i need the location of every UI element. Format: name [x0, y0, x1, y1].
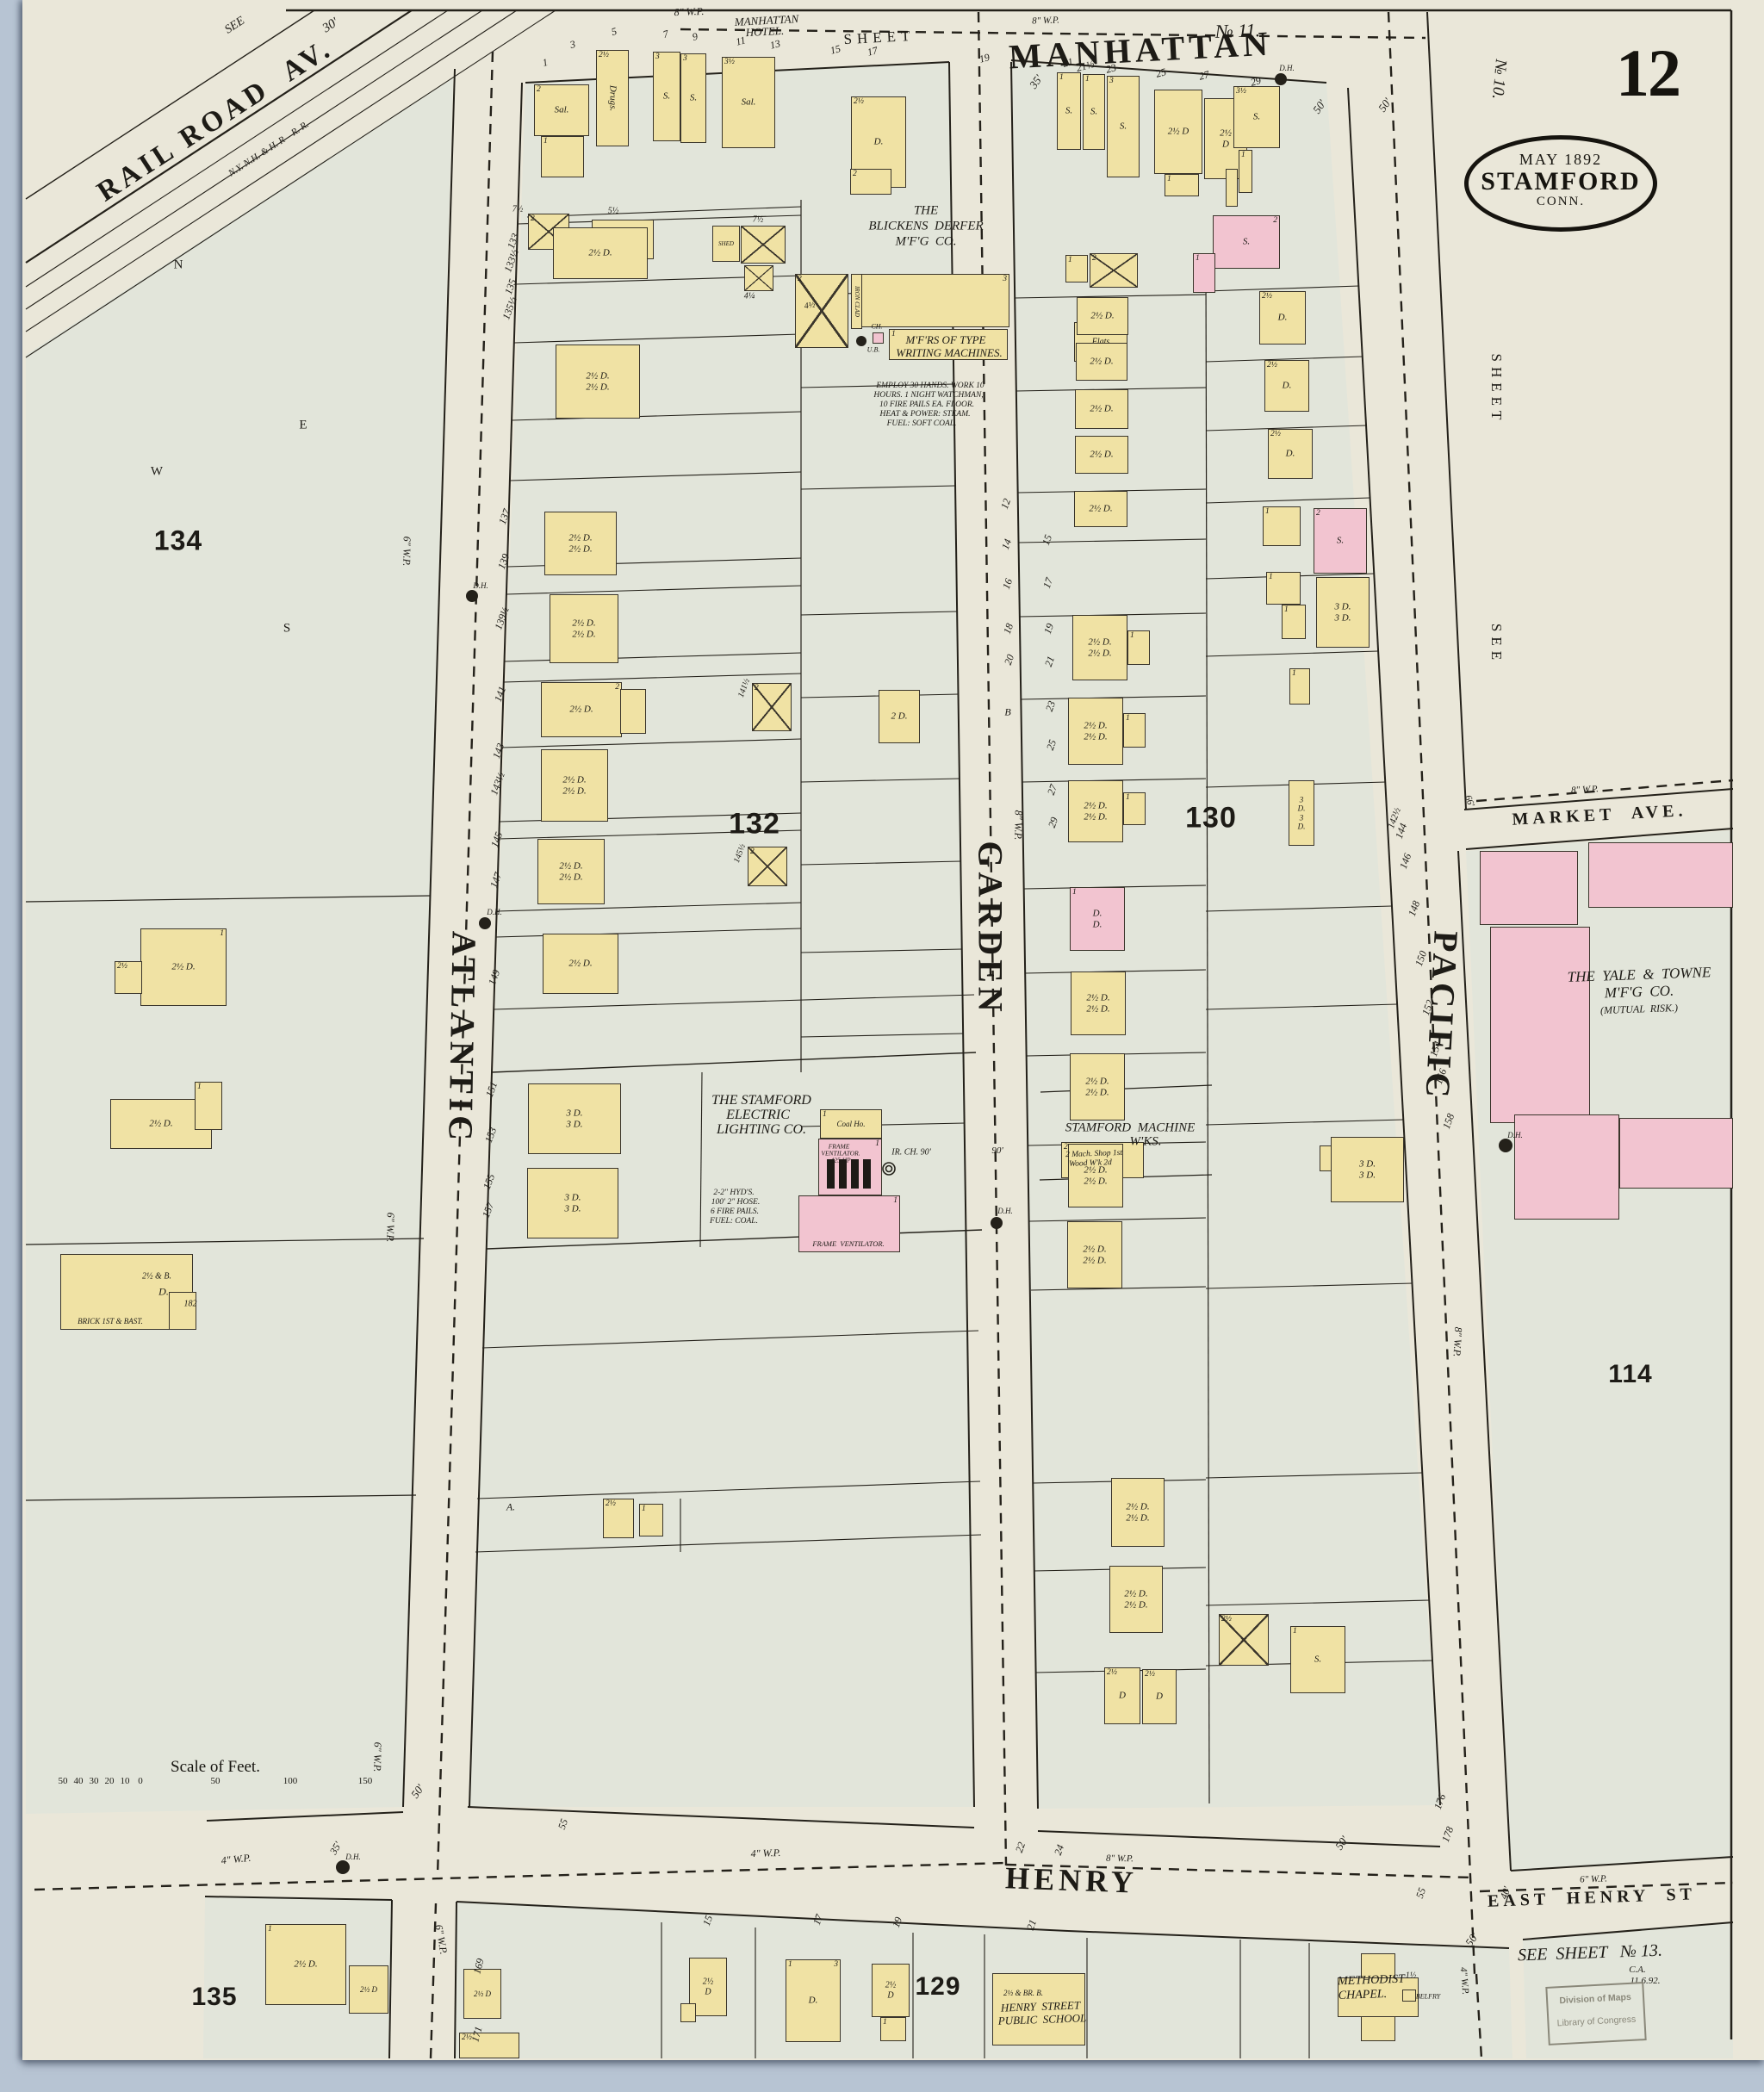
building-stories: 1	[543, 137, 548, 146]
building-label: 2½ D. 2½ D.	[559, 860, 582, 882]
map-label: 6 FIRE PAILS.	[711, 1207, 759, 1216]
building-label: 2 D.	[891, 711, 908, 723]
building-stories: 1	[197, 1083, 202, 1091]
building: 2S.	[1314, 508, 1367, 574]
map-label: D.H.	[473, 581, 488, 590]
building-label: 2½ D.	[1090, 311, 1114, 322]
building-stories: 2½	[1262, 292, 1272, 301]
map-label: ELECTRIC	[726, 1108, 790, 1123]
map-label: 8" W.P.	[674, 5, 704, 19]
building-label: S.	[1065, 106, 1072, 117]
building: 2½ D. 2½ D.	[1109, 1566, 1163, 1633]
building-stories: 1	[823, 1110, 827, 1119]
map-label: IRON CLAD	[854, 286, 860, 317]
building-label: 2½ D. 2½ D.	[1088, 636, 1111, 658]
building-label: S.	[690, 93, 697, 104]
stamp-line2: Library of Congress	[1549, 2014, 1643, 2029]
scale-tick: 50	[211, 1776, 220, 1786]
building-stories: 2½	[1107, 1668, 1117, 1677]
building: 2½ D.	[1076, 343, 1127, 381]
building: 2½D	[1104, 1667, 1140, 1724]
block-number-134: 134	[154, 525, 202, 557]
building-stories: 3½	[724, 58, 735, 66]
map-label: (MUTUAL RISK.)	[1600, 1002, 1679, 1017]
building-label: 2½ D. 2½ D.	[1085, 1076, 1109, 1097]
building-stories: 2½	[599, 51, 609, 59]
map-label: METHODIST	[1338, 1973, 1405, 1990]
building-label: 2½ D.	[569, 705, 593, 716]
water-pipe-line	[34, 1863, 1006, 1890]
street-label-atlantic: ATLANTIC	[440, 931, 484, 1145]
map-label: 2½ & BR. B.	[1003, 1989, 1043, 1997]
building-label: D.	[809, 1996, 818, 2007]
building: 2½ D. 2½ D.	[537, 839, 605, 904]
street-label-henry: HENRY	[1004, 1859, 1138, 1900]
building-stories: 3	[834, 1960, 838, 1969]
building: 1	[195, 1082, 222, 1130]
building: 1	[1263, 506, 1301, 546]
map-label: B	[1004, 706, 1010, 719]
seal-state: CONN.	[1469, 195, 1653, 209]
building-label: 2½ D.	[171, 962, 195, 973]
hydrant-dot	[1499, 1139, 1512, 1152]
building-label: 2½ D.	[568, 959, 592, 970]
map-label: 4½	[804, 300, 816, 311]
map-label: D.	[158, 1286, 169, 1299]
building: 2 D.	[879, 690, 920, 743]
building-label: 3 D. 3 D.	[1335, 601, 1351, 623]
map-label: HOURS. 1 NIGHT WATCHMAN,	[873, 391, 983, 400]
building-stories: 2½	[854, 97, 864, 106]
map-label: 4" W.P.	[750, 1847, 780, 1860]
building-stories: 1	[1265, 507, 1270, 516]
building: 2½ D. 2½ D.	[1072, 615, 1127, 680]
building	[169, 1292, 196, 1330]
map-label: 8" W.P.	[1032, 15, 1059, 26]
building	[1480, 851, 1578, 925]
building-label: Coal Ho.	[836, 1120, 865, 1128]
map-label: C.A.	[1629, 1965, 1646, 1975]
building-stories: 2	[750, 847, 755, 856]
hydrant-dot	[991, 1217, 1003, 1229]
building: 1S.	[1057, 72, 1081, 150]
building: 2½D	[1142, 1669, 1177, 1724]
building-stories: 1	[1130, 631, 1134, 640]
building-stories: 3	[1003, 275, 1007, 283]
building-stories: 2½	[1270, 430, 1281, 438]
map-label: FRAME VENTILATOR.	[812, 1239, 884, 1248]
block-number-114: 114	[1608, 1360, 1652, 1389]
map-label: M'F'G CO.	[1604, 983, 1674, 1003]
stamp-line1: Division of Maps	[1548, 1991, 1643, 2007]
map-label: M'F'RS OF TYPE	[906, 333, 986, 347]
building-stories: 2	[1092, 254, 1096, 263]
map-label: Wood W'k 2d	[1069, 1158, 1112, 1169]
map-label: EMPLOY 30 HANDS. WORK 10	[876, 382, 984, 390]
building-stories: 1	[1196, 254, 1200, 263]
building-stories: 1	[1126, 793, 1130, 802]
building-stories: 1	[1085, 75, 1090, 84]
map-label: STAMFORD MACHINE	[1065, 1121, 1196, 1136]
building: 1	[1165, 174, 1199, 196]
map-label: W'KS.	[1130, 1135, 1162, 1150]
building: 2½ D.	[1075, 389, 1128, 429]
map-label: 2½ & B.	[142, 1272, 171, 1282]
map-line	[468, 1807, 974, 1828]
building	[1402, 1990, 1416, 2002]
building-label: 2½ D	[360, 1985, 377, 1994]
building-label: 2½ D.	[1090, 404, 1113, 415]
building-stories: 2½	[606, 1499, 616, 1508]
map-label: M'F'G CO.	[896, 235, 957, 250]
building-stories: 1	[1293, 1627, 1297, 1636]
building: 1	[1266, 572, 1301, 605]
map-label: 6" W.P.	[400, 537, 413, 567]
map-label: CH.	[871, 323, 882, 331]
building-stories: 1	[1284, 605, 1289, 614]
building	[1226, 169, 1238, 207]
building-stories: 1	[1068, 256, 1072, 264]
building: 2½ D	[349, 1965, 388, 2014]
building: 2½Drugs.	[596, 50, 629, 146]
building-label: Sal.	[742, 97, 756, 109]
building	[863, 1159, 871, 1189]
building-label: 2½ D	[474, 1990, 491, 1998]
building	[1320, 1145, 1332, 1171]
block-number-132: 132	[729, 808, 780, 841]
building-stories: 2	[615, 683, 619, 692]
building	[1588, 842, 1733, 908]
building-label: 2½ D. 2½ D.	[572, 618, 595, 639]
building: 1	[1193, 253, 1215, 293]
scale-tick: 150	[358, 1776, 373, 1786]
building-label: D	[1119, 1691, 1126, 1702]
building: 2½	[459, 2033, 519, 2058]
building: 2½	[115, 961, 142, 994]
map-label: 7½	[753, 215, 764, 225]
building: 2½ D.	[1074, 491, 1127, 527]
building-stories: 2	[755, 684, 759, 692]
building: 1	[1123, 792, 1146, 825]
building-label: D.	[1283, 381, 1292, 392]
building-stories: 1	[1269, 573, 1273, 581]
map-label: A.	[506, 1501, 515, 1514]
map-label: THE	[914, 204, 938, 219]
sanborn-map-page: 2Sal.12½Drugs.3S.3S.3½Sal.2½D.22BOTTLING…	[0, 0, 1764, 2092]
building-label: 2½ D.	[1089, 504, 1112, 515]
building-label: 2½ D.	[149, 1119, 172, 1130]
building-label: 3 D. 3 D.	[567, 1108, 583, 1129]
building-stories: 2½	[117, 962, 127, 971]
street-label-garden: GARDEN	[971, 841, 1011, 1015]
building-stories: 1	[1126, 714, 1130, 723]
building: 2½ D. 2½ D.	[544, 512, 617, 575]
building: 2½ D. 2½ D.	[1070, 1053, 1125, 1120]
building	[873, 332, 884, 344]
building-label: 2½ D. 2½ D.	[1086, 992, 1109, 1014]
map-label: IR. CH. 90'	[891, 1148, 930, 1158]
building: 2½ D.	[543, 934, 618, 994]
building: 3S.	[680, 53, 706, 143]
building	[1514, 1114, 1619, 1220]
map-label: D.H.	[1507, 1131, 1523, 1139]
building: 2½ D. 2½ D.	[1068, 698, 1123, 765]
building	[1490, 927, 1590, 1123]
building-label: S.	[1253, 112, 1260, 123]
building-label: D.	[1278, 313, 1288, 324]
map-label: BELFRY	[1416, 1993, 1440, 2001]
building: 2½D.	[1259, 291, 1306, 345]
building: 2½ D. 2½ D.	[1068, 780, 1123, 842]
building-stories: 1	[220, 929, 224, 938]
map-line	[1038, 1831, 1440, 1847]
building: 3S.	[653, 52, 680, 141]
map-label: 8" W.P.	[1450, 1326, 1465, 1356]
map-label: U.B.	[867, 346, 880, 354]
scale-tick: 20	[105, 1776, 115, 1786]
building: 2½ D. 2½ D.	[1071, 972, 1126, 1035]
building: 3	[861, 274, 1009, 327]
seal-city: STAMFORD	[1469, 169, 1653, 195]
building: 1	[541, 136, 584, 177]
building: 2½ D. 2½ D.	[541, 749, 608, 822]
building-label: Drugs.	[607, 85, 618, 111]
building: 2Sal.	[534, 84, 589, 136]
map-label: BLICKENS DERFER	[868, 220, 983, 234]
building-stories: 1	[893, 1196, 898, 1205]
building	[851, 1159, 859, 1189]
building: 2½D.	[1264, 360, 1309, 412]
map-line	[1427, 12, 1466, 810]
compass-s: S	[283, 622, 290, 636]
building: 2	[1090, 253, 1138, 288]
hydrant-dot	[479, 917, 491, 929]
building	[744, 265, 773, 291]
building-label: 2½ D.	[588, 248, 612, 259]
map-label: SHEET	[1488, 354, 1505, 425]
building: 3 D. 3 D.	[527, 1168, 618, 1238]
map-label: 6" W.P.	[1580, 1873, 1607, 1884]
building-label: 2½ D.	[1090, 450, 1113, 461]
building-label: 3 D. 3 D.	[1295, 795, 1307, 830]
map-label: LIGHTING CO.	[717, 1122, 806, 1138]
building: 2½ D. 2½ D.	[1067, 1221, 1122, 1288]
building-stories: 1	[1241, 151, 1245, 159]
map-label: 4¼	[744, 292, 755, 301]
map-label: FUEL: COAL.	[710, 1217, 758, 1226]
map-label: SEE	[1488, 624, 1505, 665]
building	[680, 2003, 696, 2022]
building-label: S.	[1120, 121, 1127, 133]
building: SHED	[712, 226, 740, 262]
map-label: 6" W.P.	[370, 1742, 384, 1772]
building-stories: 2	[531, 214, 535, 223]
building: 3 D. 3 D.	[1289, 780, 1314, 846]
building: 2½ D. 2½ D.	[556, 345, 640, 419]
building: 1	[1289, 668, 1310, 705]
building-stories: 3½	[1236, 87, 1246, 96]
building: 3 D. 3 D.	[1331, 1137, 1404, 1202]
block-tint	[26, 78, 453, 1814]
map-label: 8" W.P.	[1571, 784, 1599, 796]
block-number-130: 130	[1185, 802, 1237, 835]
hydrant-dot	[336, 1860, 350, 1874]
map-label: 6" W.P.	[383, 1213, 397, 1243]
building-stories: 2	[1316, 509, 1320, 518]
building: 1	[880, 2017, 906, 2041]
building-label: D. D.	[1093, 908, 1102, 929]
compass-w: W	[151, 465, 163, 480]
building: 1S.	[1290, 1626, 1345, 1693]
building-stories: 1	[1292, 669, 1296, 678]
building-label: S.	[1243, 237, 1250, 248]
map-line	[207, 1812, 403, 1821]
block-number-129: 129	[915, 1972, 960, 2002]
map-label: 7½	[512, 205, 524, 214]
building: 1	[1127, 630, 1150, 665]
compass-n: N	[174, 258, 183, 273]
water-pipe-line	[1476, 780, 1733, 801]
building: 22½ D.	[541, 682, 622, 737]
building-label: 2½ D.	[1090, 357, 1113, 368]
building-label: 2½ D	[885, 1981, 897, 2001]
building-label: 2½ D. 2½ D.	[1126, 1501, 1149, 1523]
building-label: 2½ D.	[294, 1959, 317, 1971]
building-stories: 2	[798, 275, 802, 283]
building: 3½Sal.	[722, 57, 775, 148]
scale-tick: 0	[138, 1776, 143, 1786]
building-label: SHED	[718, 240, 734, 247]
building: 2S.	[1213, 215, 1280, 269]
building: 2	[795, 274, 848, 348]
building-label: S.	[1337, 536, 1344, 547]
map-label: № 11.	[1214, 19, 1260, 43]
building-label: S.	[1314, 1654, 1321, 1666]
building	[620, 689, 646, 734]
map-label: 10 FIRE PAILS EA. FLOOR.	[879, 400, 974, 409]
building: 3 D. 3 D.	[528, 1083, 621, 1154]
building-stories: 1	[788, 1960, 792, 1969]
building-stories: 1	[1167, 175, 1171, 183]
building-stories: 3	[655, 53, 660, 61]
building: 2½	[603, 1499, 634, 1538]
building: 12½ D.	[140, 928, 227, 1006]
building: 2½D.	[1268, 429, 1313, 479]
building-stories: 2½	[1221, 1615, 1232, 1623]
compass-e: E	[299, 419, 307, 433]
building-label: 2½ D. 2½ D.	[562, 774, 586, 796]
map-label: 90'	[991, 1145, 1003, 1156]
building-label: 2½ D. 2½ D.	[1084, 1164, 1107, 1186]
building-stories: 2	[853, 170, 857, 178]
building: 2	[850, 169, 891, 195]
map-label: BRICK 1ST & BAST.	[78, 1317, 143, 1325]
scale-tick: 40	[74, 1776, 84, 1786]
map-label: WRITING MACHINES.	[896, 346, 1003, 360]
building: 1	[1282, 605, 1306, 639]
building-label: 3 D. 3 D.	[565, 1192, 581, 1214]
hydrant-dot	[856, 336, 866, 346]
building-stories: 1	[891, 330, 896, 338]
map-label: D.H.	[345, 1853, 361, 1861]
building: 2½ D. 2½ D.	[550, 594, 618, 663]
scale-tick: 50	[59, 1776, 68, 1786]
map-label: 100' 2" HOSE.	[711, 1198, 760, 1207]
building-stories: 1	[1072, 888, 1077, 897]
hydrant-dot	[1275, 73, 1287, 85]
map-label: HEAT & POWER: STEAM.	[879, 410, 970, 419]
building-stories: 2	[537, 85, 541, 94]
building-stories: 3	[683, 54, 687, 63]
building: 1	[1239, 150, 1252, 193]
sheet-number: 12	[1600, 34, 1695, 112]
building-label: D	[1156, 1692, 1163, 1703]
block-number-135: 135	[191, 1983, 237, 2012]
building: 2½ D.	[1075, 436, 1128, 474]
building-label: 2½ D	[1168, 127, 1189, 138]
building: 2½	[1219, 1614, 1269, 1666]
building: 2½ D.	[1077, 297, 1128, 335]
building-label: 2½ D. 2½ D.	[1083, 1244, 1106, 1265]
map-label: 8" W.P.	[1011, 810, 1025, 841]
building: 1Coal Ho.	[820, 1109, 882, 1139]
building: 1	[1123, 713, 1146, 748]
building: 2½ D	[872, 1964, 910, 2017]
building-stories: 1	[883, 2018, 887, 2027]
building-label: 3 D. 3 D.	[1359, 1158, 1376, 1180]
building: 1D. D.	[1070, 887, 1125, 951]
building-label: S.	[663, 91, 670, 102]
building: 2½ D. 2½ D.	[1111, 1478, 1165, 1547]
building-label: Sal.	[555, 105, 569, 116]
scale-tick: 10	[121, 1776, 130, 1786]
building-label: 2½ D	[703, 1977, 714, 1997]
scale-title: Scale of Feet.	[171, 1758, 260, 1777]
building: 3 D. 3 D.	[1316, 577, 1370, 648]
map-label: 425 HP	[830, 1157, 850, 1164]
building: 1	[639, 1504, 663, 1536]
building-stories: 2½	[1145, 1670, 1155, 1679]
building: 12½ D.	[265, 1924, 346, 2005]
building: 2½ D	[463, 1969, 501, 2019]
building-label: 2½ D. 2½ D.	[1124, 1588, 1147, 1610]
building	[1619, 1118, 1733, 1189]
building	[741, 226, 786, 264]
scale-tick: 100	[283, 1776, 298, 1786]
building: 1S.	[1083, 74, 1105, 150]
building-label: D.	[874, 137, 884, 148]
building: 2	[752, 683, 792, 731]
map-label: 2-2" HYD'S.	[713, 1189, 754, 1197]
map-label: 8" W.P.	[1106, 1853, 1134, 1865]
map-label: THE STAMFORD	[711, 1093, 811, 1108]
map-label: CHAPEL.	[1339, 1988, 1388, 2003]
building-stories: 2½	[1267, 361, 1277, 369]
seal-date: MAY 1892	[1469, 151, 1653, 169]
building-label: 2½ D. 2½ D.	[568, 532, 592, 554]
map-label: D.H.	[1279, 64, 1295, 72]
map-label: D.H.	[487, 908, 502, 916]
building-label: 2½ D. 2½ D.	[1084, 720, 1107, 742]
building: 2	[748, 847, 787, 886]
hydrant-dot	[466, 590, 478, 602]
scale-tick: 30	[90, 1776, 99, 1786]
map-label: D.H.	[997, 1207, 1013, 1215]
map-label: FUEL: SOFT COAL.	[887, 419, 957, 428]
building: 13D.	[786, 1959, 841, 2042]
stamford-seal: MAY 1892 STAMFORD CONN.	[1464, 135, 1657, 232]
building-stories: 1	[642, 1505, 646, 1513]
